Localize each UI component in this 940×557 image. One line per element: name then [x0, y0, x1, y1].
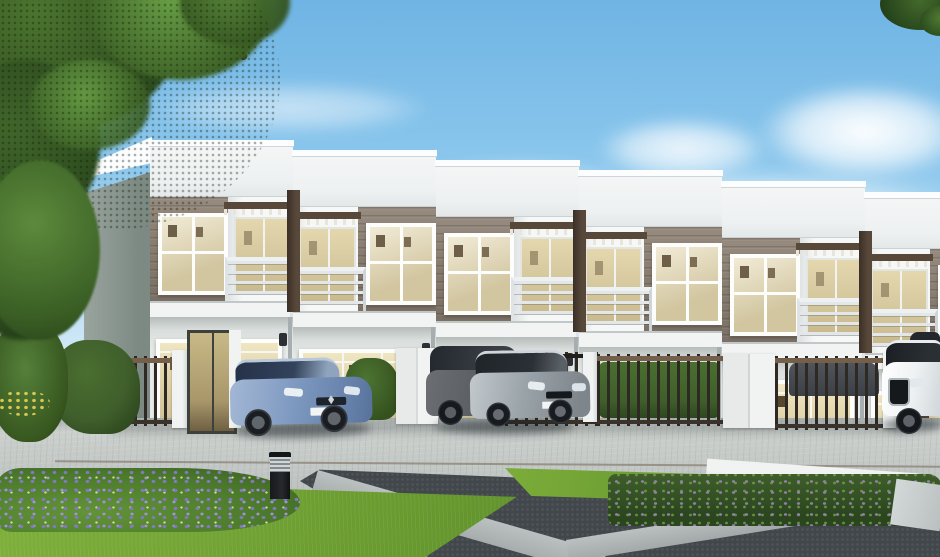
roof-fascia [579, 177, 722, 227]
divider-fin [573, 210, 586, 332]
scene-architectural-rendering [0, 0, 940, 557]
headlight [344, 386, 361, 396]
bollard-lamp-band [270, 457, 290, 472]
white-gate [723, 354, 775, 428]
parapet-cap [721, 181, 866, 188]
upper-window [730, 254, 800, 336]
second-floor [579, 227, 722, 331]
second-floor [436, 217, 579, 321]
parapet-cap [578, 170, 723, 177]
siding-panel [436, 217, 514, 321]
upper-window [652, 243, 722, 325]
car-grille [546, 391, 572, 398]
parapet-cap [435, 160, 580, 167]
wheel [438, 400, 463, 425]
car-silver-hatchback [469, 349, 590, 433]
bollard-light [269, 452, 291, 499]
planter-curb [890, 479, 940, 532]
balcony [579, 227, 644, 331]
pergola-slats [796, 250, 868, 256]
headlight [910, 377, 928, 388]
siding-panel [644, 227, 722, 331]
purple-flower-bed [0, 468, 300, 532]
car-white-suv [882, 336, 940, 436]
car-grille [888, 378, 910, 406]
bollard-body [270, 472, 290, 499]
fence-with-hedge [597, 354, 723, 426]
wheel [486, 402, 510, 426]
wheel [548, 399, 572, 423]
wheel [896, 408, 922, 434]
balcony [800, 238, 865, 342]
roof-fascia [436, 167, 579, 217]
second-floor [722, 238, 865, 342]
roof-fascia [865, 199, 940, 249]
balcony-railing [576, 287, 652, 337]
pergola-slats [510, 229, 582, 235]
pergola-beam [510, 222, 582, 229]
parapet-cap [864, 192, 940, 199]
roof-fascia [722, 188, 865, 238]
divider-fin [287, 190, 300, 312]
car-pair-gray [426, 342, 576, 438]
divider-fin [859, 231, 872, 353]
pergola-beam [796, 243, 868, 250]
headlight [572, 383, 586, 391]
headlight [528, 381, 546, 391]
headlight [284, 387, 304, 396]
balcony [514, 217, 579, 321]
upper-window [444, 233, 514, 315]
siding-panel [722, 238, 800, 342]
fence-right [775, 356, 885, 430]
